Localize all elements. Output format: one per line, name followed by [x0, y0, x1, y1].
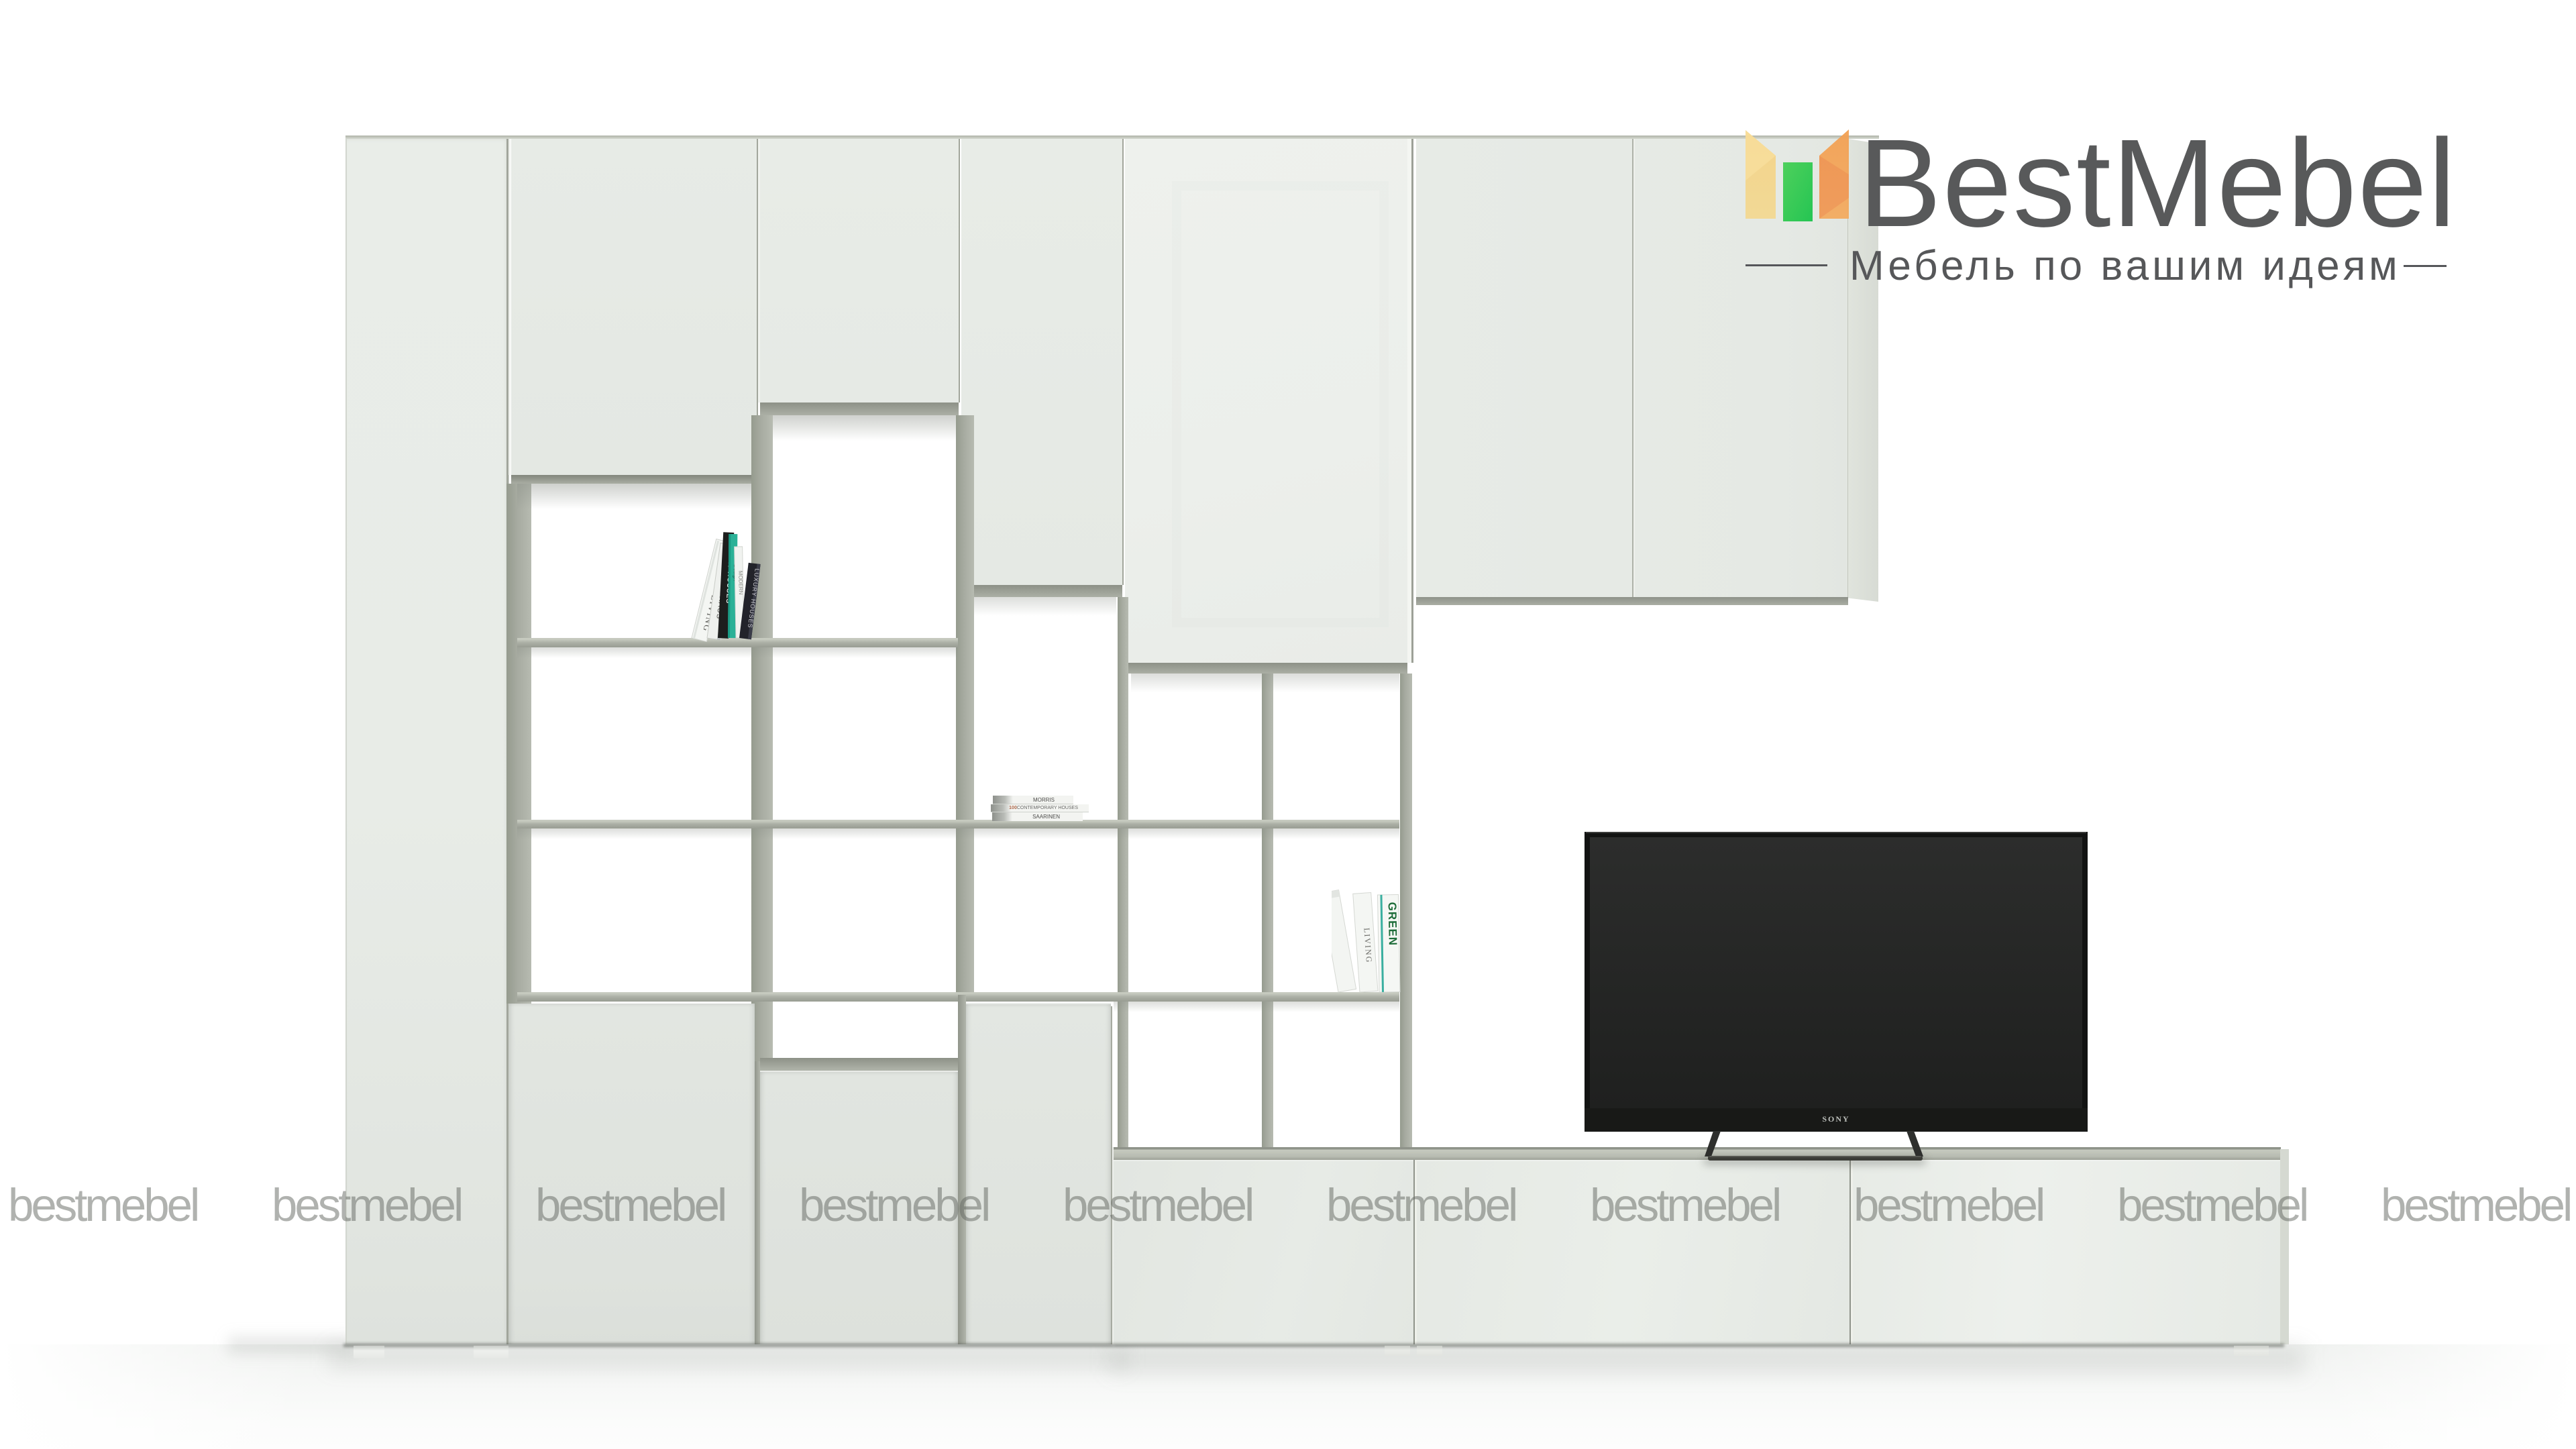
svg-text:GREEN: GREEN — [1386, 902, 1399, 946]
svg-text:MODERN: MODERN — [737, 571, 744, 595]
